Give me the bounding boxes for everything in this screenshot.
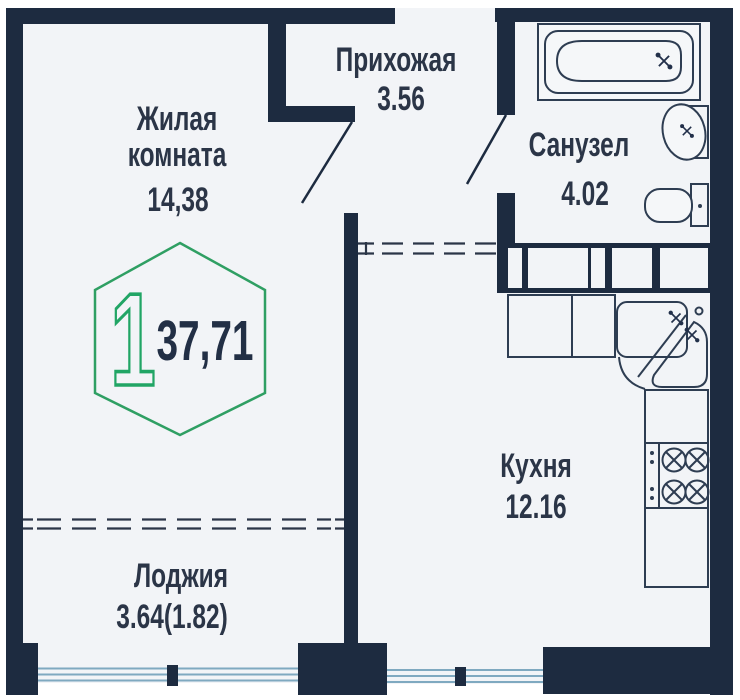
vent-shaft-icon bbox=[497, 243, 712, 293]
bathroom-area: 4.02 bbox=[561, 175, 609, 213]
living-room-area: 14,38 bbox=[147, 181, 208, 219]
floor-plan-svg: 1 37,71 Жилая комната 14,38 Прихожая 3.5… bbox=[0, 0, 740, 700]
loggia-name: Лоджия bbox=[134, 557, 228, 595]
hallway-area: 3.56 bbox=[377, 80, 425, 118]
badge-room-count: 1 bbox=[110, 267, 156, 414]
loggia-area: 3.64(1.82) bbox=[116, 598, 228, 636]
bathtub-icon bbox=[538, 24, 700, 100]
living-room-name-line2: комната bbox=[128, 136, 227, 174]
kitchen-name: Кухня bbox=[500, 447, 572, 485]
kitchen-area: 12.16 bbox=[505, 488, 566, 526]
exterior-strip bbox=[387, 684, 543, 700]
living-room-name-line1: Жилая bbox=[136, 100, 217, 138]
floor-plan: 1 37,71 Жилая комната 14,38 Прихожая 3.5… bbox=[0, 0, 740, 700]
badge-total-area: 37,71 bbox=[157, 310, 254, 373]
hallway-name: Прихожая bbox=[336, 41, 457, 79]
bathroom-name: Санузел bbox=[529, 126, 630, 164]
